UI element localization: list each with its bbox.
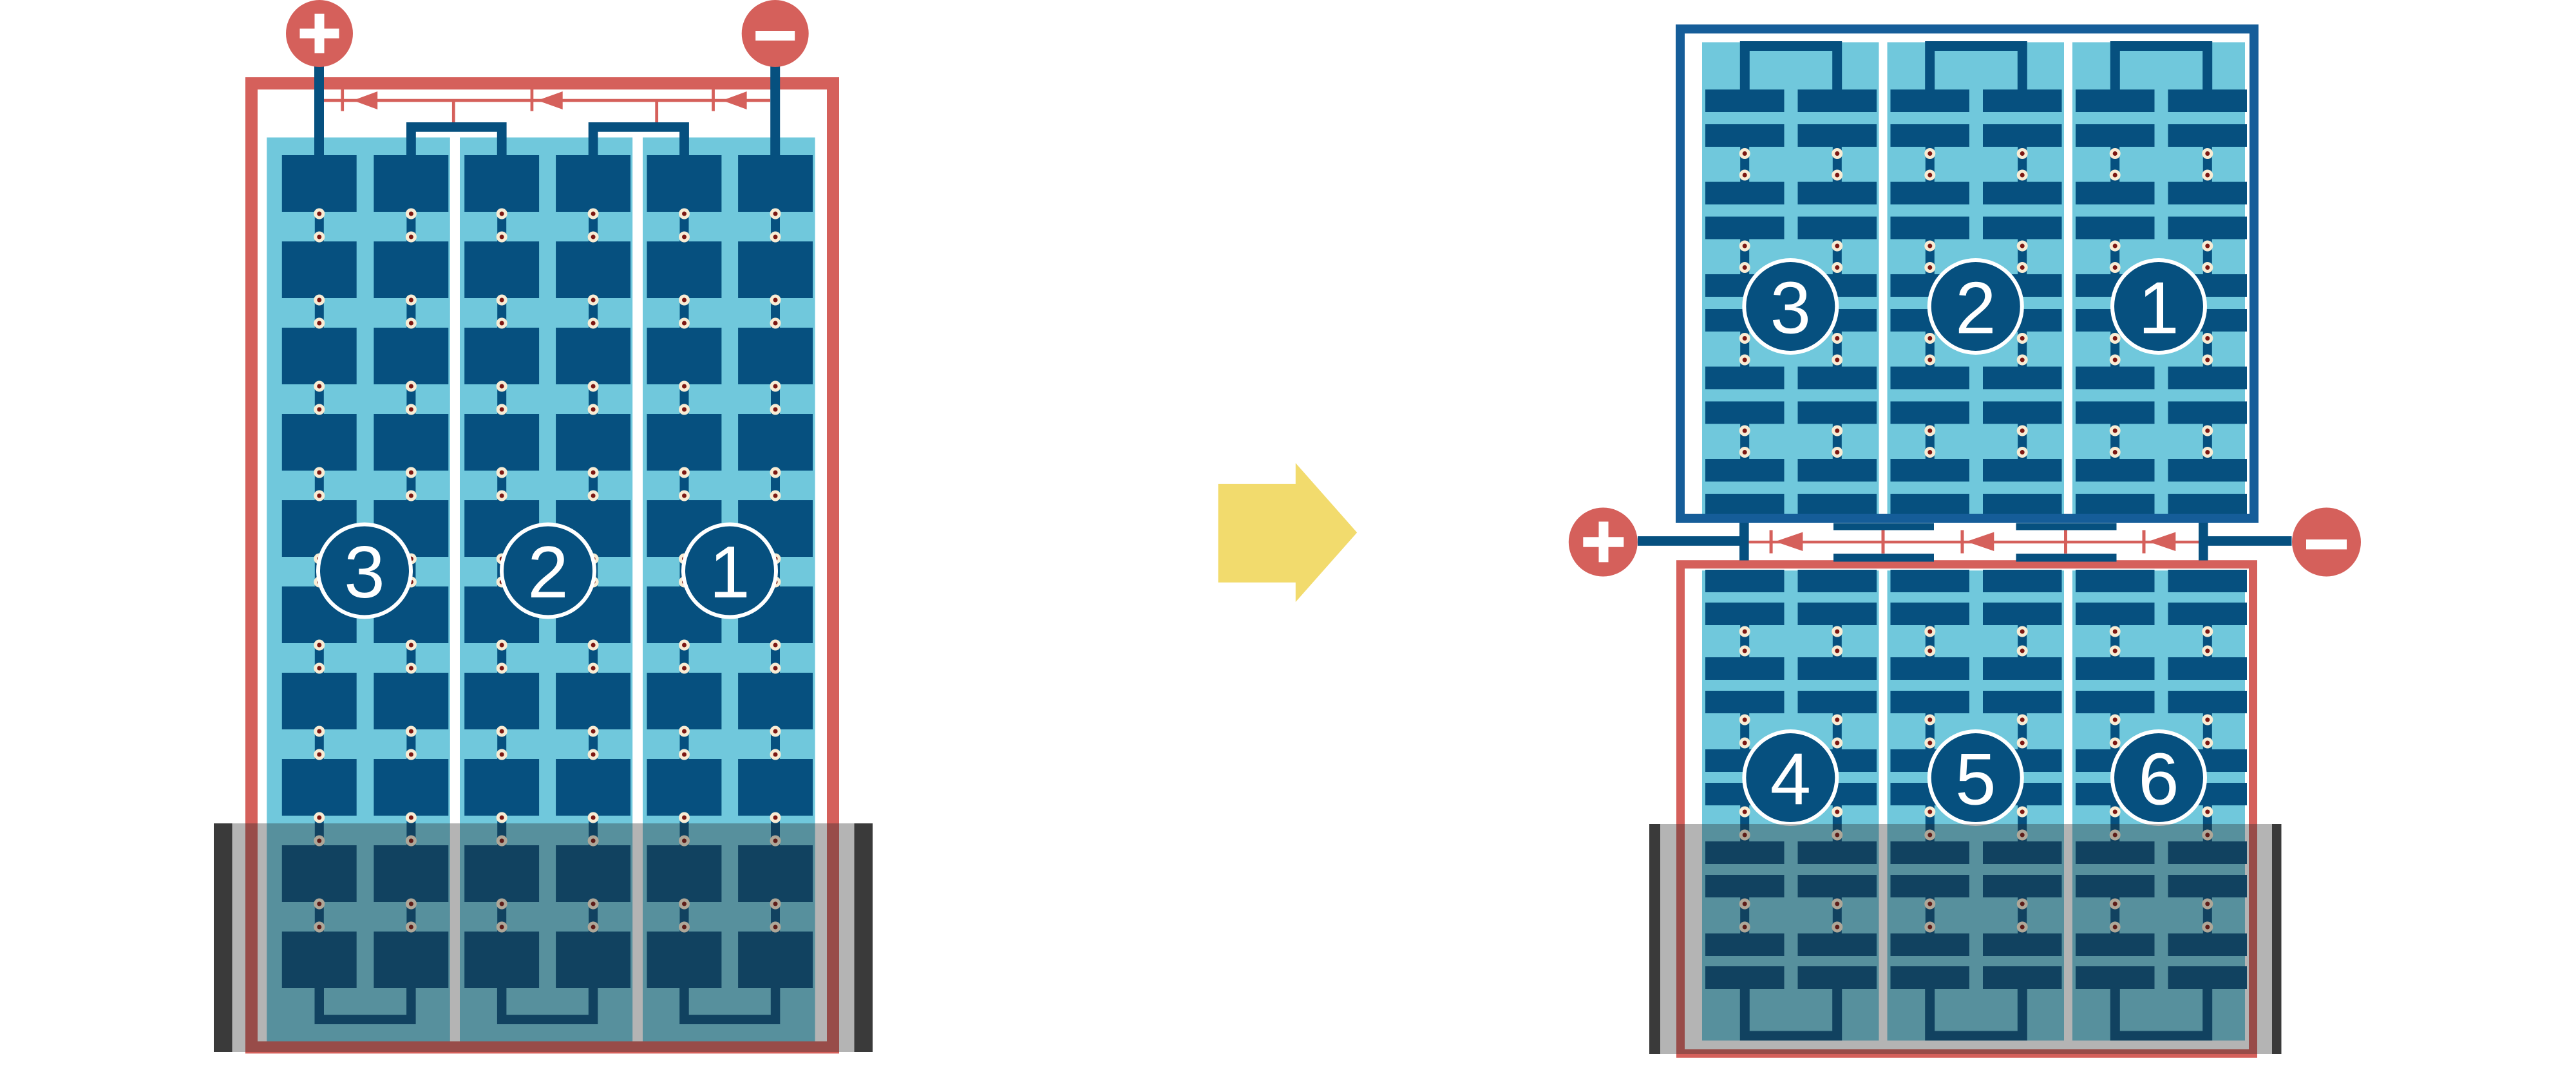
svg-text:5: 5	[1955, 739, 1996, 821]
svg-text:1: 1	[709, 532, 750, 614]
svg-text:3: 3	[1770, 268, 1811, 350]
svg-text:2: 2	[527, 532, 568, 614]
svg-text:3: 3	[344, 532, 384, 614]
svg-text:6: 6	[2138, 739, 2179, 821]
svg-text:4: 4	[1770, 739, 1811, 821]
svg-text:2: 2	[1955, 268, 1996, 350]
svg-text:1: 1	[2138, 268, 2179, 350]
